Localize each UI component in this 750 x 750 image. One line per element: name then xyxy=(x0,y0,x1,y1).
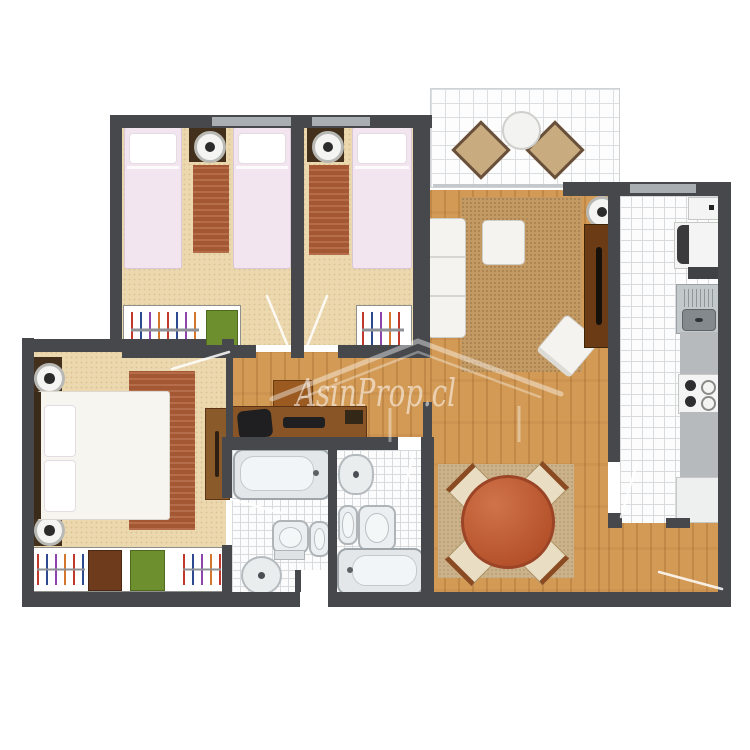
door-swing-bedroom-1 xyxy=(267,296,289,349)
door-swing-kitchen xyxy=(621,463,637,517)
door-swing-entry xyxy=(659,572,722,589)
watermark-text: AsinProp.cl xyxy=(294,371,456,415)
door-swing-bedroom-2 xyxy=(306,296,327,349)
door-swing-bathroom-1 xyxy=(233,500,281,513)
overlay: AsinProp.cl xyxy=(0,0,750,750)
floor-plan: AsinProp.cl xyxy=(0,0,750,750)
watermark: AsinProp.cl xyxy=(272,341,561,442)
door-swing-master xyxy=(172,352,229,369)
door-swing-bathroom-2 xyxy=(403,452,414,494)
